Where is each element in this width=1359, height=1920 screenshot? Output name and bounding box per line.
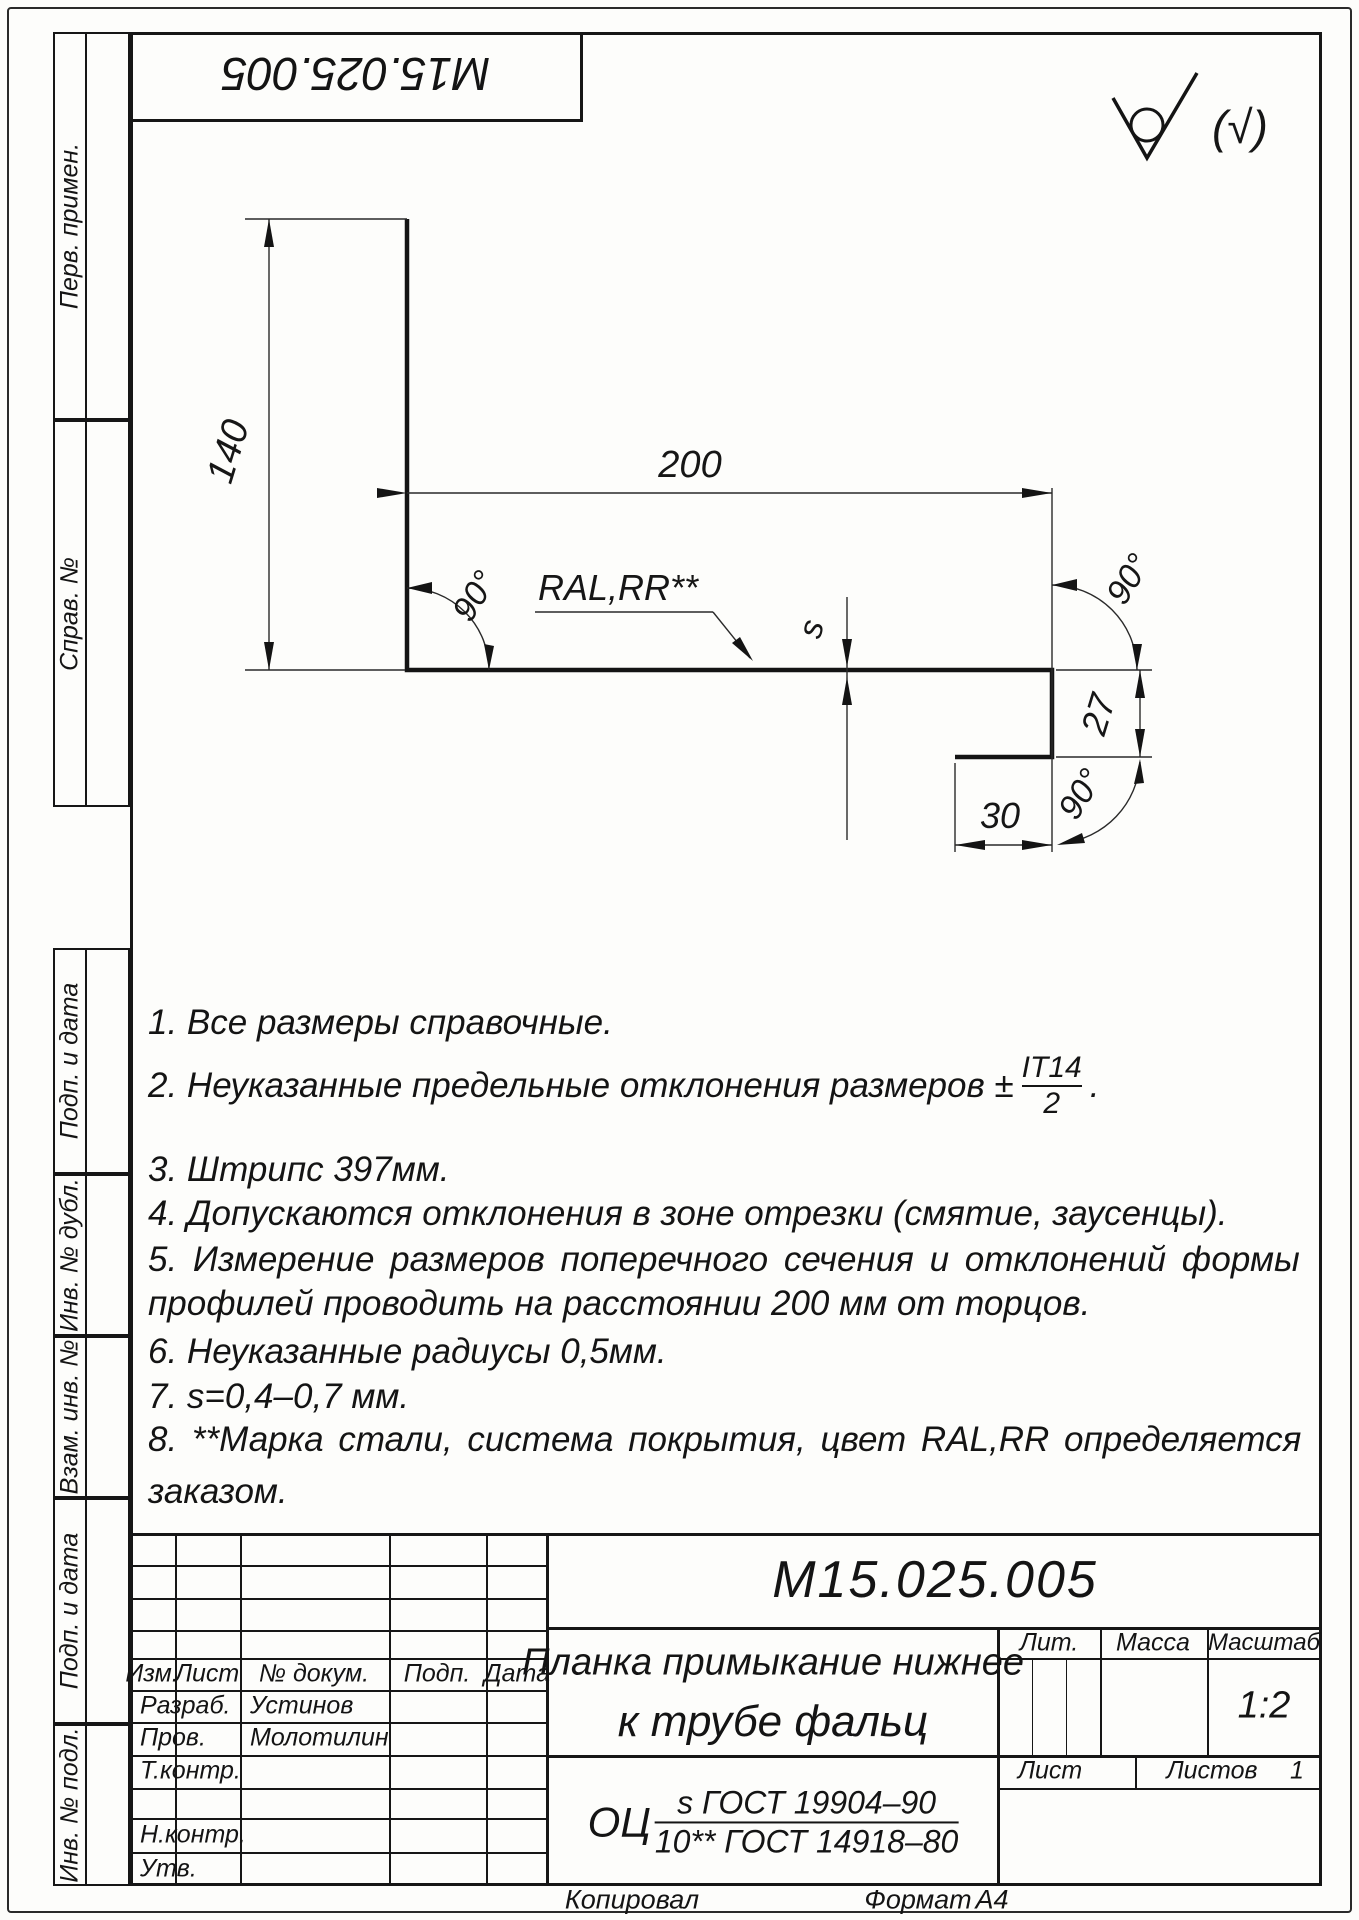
surface-finish-note: (√) — [1212, 101, 1268, 153]
note-text: 2. Неуказанные предельные отклонения раз… — [148, 1066, 1014, 1106]
note-line: 6. Неуказанные радиусы 0,5мм. — [148, 1332, 667, 1372]
note-line: 7. s=0,4–0,7 мм. — [148, 1377, 409, 1417]
profile-outline — [407, 219, 1052, 757]
grid-line — [998, 1788, 1322, 1790]
note-line: профилей проводить на расстоянии 200 мм … — [148, 1284, 1090, 1324]
grid-line — [130, 1630, 548, 1632]
fraction-numerator: IT14 — [1022, 1052, 1082, 1084]
part-title-line2: к трубе фальц — [618, 1697, 928, 1747]
note-text: . — [1090, 1066, 1100, 1106]
role-razrab: Разраб. — [140, 1692, 230, 1721]
dim-arrow — [264, 642, 274, 670]
masshtab-label: Масштаб — [1208, 1629, 1320, 1657]
grid-line — [130, 1565, 548, 1567]
grid-line — [548, 1627, 1322, 1630]
grid-line — [130, 1598, 548, 1600]
grid-line — [1032, 1658, 1033, 1755]
dim-30-label: 30 — [980, 795, 1020, 836]
person-prov: Молотилин — [250, 1724, 389, 1753]
kopiroval-label: Копировал — [565, 1885, 699, 1916]
surface-finish-icon — [1113, 73, 1197, 158]
margin-box-podp-data-2: Подп. и дата — [53, 1498, 130, 1724]
dim-140-label: 140 — [199, 415, 258, 488]
grid-line — [1135, 1755, 1137, 1788]
material-fraction: s ГОСТ 19904–90 10** ГОСТ 14918–80 — [655, 1785, 958, 1858]
margin-box-label-area: Подп. и дата — [55, 950, 87, 1172]
material-prefix: ОЦ — [588, 1798, 651, 1846]
arc-arrow — [1052, 579, 1077, 591]
note-line: 3. Штрипс 397мм. — [148, 1150, 449, 1190]
note-line: 8. **Марка стали, система покрытия, цвет… — [148, 1420, 1301, 1460]
surface-finish-circle — [1131, 109, 1163, 141]
grid-line — [130, 1788, 548, 1790]
angle-label-left: 90° — [445, 564, 504, 628]
material-spec: ОЦ s ГОСТ 19904–90 10** ГОСТ 14918–80 — [588, 1785, 959, 1858]
note-line: 5. Измерение размеров поперечного сечени… — [148, 1240, 1300, 1280]
fraction-denominator: 2 — [1043, 1088, 1060, 1120]
massa-label: Масса — [1116, 1629, 1190, 1658]
grid-line — [1066, 1658, 1067, 1755]
grid-line — [546, 1533, 549, 1886]
grid-line — [998, 1658, 1322, 1660]
doc-number: М15.025.005 — [772, 1550, 1098, 1610]
header-dokum: № докум. — [259, 1660, 369, 1689]
dim-arrow — [1135, 670, 1145, 698]
note-line: 4. Допускаются отклонения в зоне отрезки… — [148, 1194, 1227, 1234]
arc-arrow — [407, 582, 432, 594]
role-prov: Пров. — [140, 1724, 206, 1753]
dim-27-label: 27 — [1072, 687, 1124, 740]
note-line: 1. Все размеры справочные. — [148, 1003, 613, 1043]
dim-arrow — [1022, 840, 1052, 850]
dim-arrow — [264, 219, 274, 247]
role-tkontr: Т.контр. — [140, 1757, 241, 1786]
margin-label: Инв. № дубл. — [56, 1178, 85, 1332]
dim-200-label: 200 — [657, 444, 721, 486]
dim-arrow — [1022, 488, 1052, 498]
margin-label: Подп. и дата — [56, 983, 85, 1140]
coating-label: RAL,RR** — [538, 567, 699, 608]
note-line: заказом. — [148, 1472, 288, 1512]
format-value: А4 — [975, 1885, 1008, 1916]
dim-arrow — [377, 488, 407, 498]
dim-arrow — [1135, 729, 1145, 757]
dim-s-label: s — [791, 615, 832, 642]
arc-arrow — [1134, 759, 1144, 784]
dim-arrow — [955, 840, 985, 850]
role-nkontr: Н.контр. — [140, 1821, 246, 1850]
role-utv: Утв. — [140, 1855, 197, 1884]
scale-value: 1:2 — [1238, 1685, 1291, 1728]
margin-box-label-area: Подп. и дата — [55, 1500, 87, 1722]
note-line: 2. Неуказанные предельные отклонения раз… — [148, 1052, 1099, 1121]
grid-line — [1100, 1627, 1102, 1755]
margin-box-vzam-inv: Взам. инв. № — [53, 1336, 130, 1498]
header-izm: Изм. — [125, 1660, 178, 1689]
header-podp: Подп. — [404, 1660, 471, 1689]
listov-value: 1 — [1290, 1757, 1304, 1786]
margin-box-inv-dubl: Инв. № дубл. — [53, 1174, 130, 1336]
material-numerator: s ГОСТ 19904–90 — [677, 1785, 936, 1820]
person-razrab: Устинов — [250, 1692, 353, 1721]
format-label: Формат — [864, 1885, 971, 1916]
dim-arrow — [842, 677, 852, 705]
arc-arrow — [1057, 833, 1085, 845]
drawing-view: 140 200 27 30 s 90° 90° 90° RAL,RR** (√) — [0, 0, 1359, 960]
tolerance-fraction: IT14 2 — [1022, 1052, 1082, 1121]
sheet: М15.025.005 Перв. примен. Справ. № Подп.… — [0, 0, 1359, 1920]
margin-box-inv-podl: Инв. № подл. — [53, 1724, 130, 1886]
margin-box-label-area: Инв. № дубл. — [55, 1176, 87, 1334]
margin-label: Взам. инв. № — [56, 1340, 85, 1495]
list-label: Лист — [1018, 1757, 1082, 1786]
arc-arrow — [1132, 644, 1142, 670]
arc-arrow — [484, 644, 494, 670]
margin-label: Инв. № подл. — [56, 1727, 85, 1882]
margin-box-label-area: Взам. инв. № — [55, 1338, 87, 1496]
material-denominator: 10** ГОСТ 14918–80 — [655, 1824, 958, 1859]
grid-line — [389, 1533, 391, 1886]
grid-line — [486, 1533, 488, 1886]
dim-arrow — [842, 639, 852, 667]
margin-label: Подп. и дата — [56, 1533, 85, 1690]
listov-label: Листов — [1166, 1757, 1257, 1786]
angle-label-bottom-right: 90° — [1051, 762, 1110, 826]
header-list: Лист — [175, 1660, 239, 1689]
margin-box-label-area: Инв. № подл. — [55, 1726, 87, 1884]
lit-label: Лит. — [1020, 1629, 1079, 1658]
part-title-line1: Планка примыкание нижнее — [522, 1642, 1024, 1685]
angle-label-top-right: 90° — [1099, 547, 1158, 611]
margin-box-podp-data-1: Подп. и дата — [53, 948, 130, 1174]
